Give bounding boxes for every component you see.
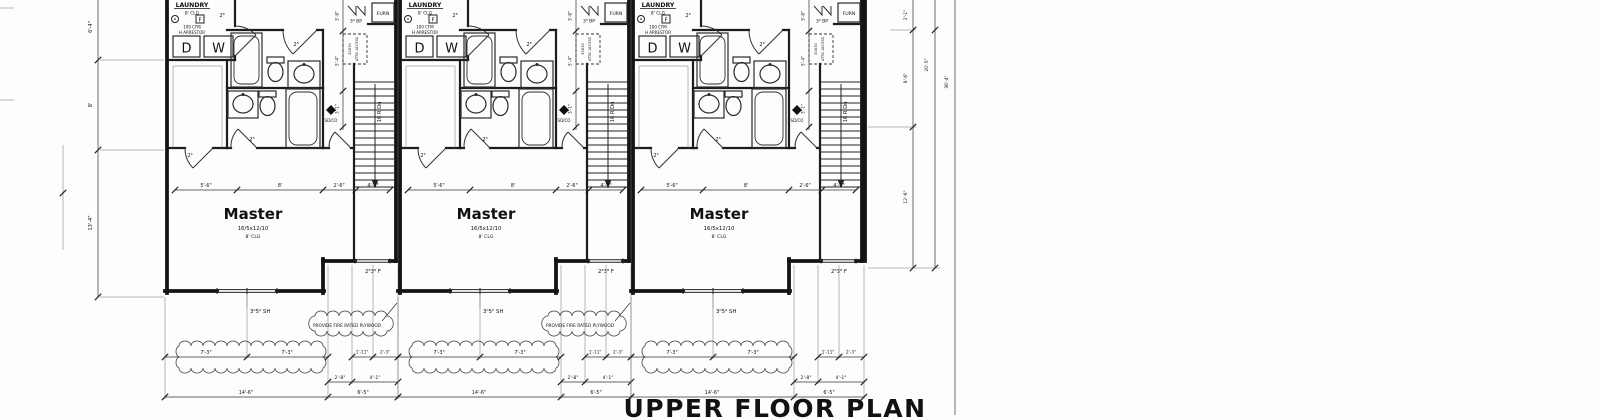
note-text: PROVIDE FIRE RATED PLYWOOD: [313, 323, 382, 329]
unit-plan-1: [162, 0, 401, 400]
unit-plan-3: [628, 0, 867, 400]
left-dimension-chain: 6'-4" 8' 13'-4": [88, 0, 164, 300]
right-dimension-chains: 2'-1" 8'-6" 12'-6" 20'-5" 36'-4": [868, 0, 955, 415]
dimension-label: 6'-4": [88, 21, 94, 33]
dimension-label: 13'-4": [88, 215, 94, 230]
drawing-title: UPPER FLOOR PLAN: [623, 394, 926, 420]
dimension-label: 8': [88, 103, 94, 108]
dimension-label: 8'-6": [903, 73, 909, 83]
dimension-label: 36'-4": [944, 75, 950, 88]
fire-plywood-note-2: PROVIDE FIRE RATED PLYWOOD: [542, 303, 630, 336]
dimension-label: 2'-1": [903, 10, 909, 20]
unit-plan-2: [395, 0, 634, 400]
fire-plywood-note-1: PROVIDE FIRE RATED PLYWOOD: [309, 303, 397, 336]
cutoff-extension-stubs: [0, 8, 63, 250]
note-text: PROVIDE FIRE RATED PLYWOOD: [546, 323, 615, 329]
floor-plan-canvas: D W: [0, 0, 1600, 420]
dimension-label: 20'-5": [924, 58, 930, 71]
floor-plan-sheet: D W: [0, 0, 1600, 420]
dimension-label: 12'-6": [903, 190, 909, 203]
